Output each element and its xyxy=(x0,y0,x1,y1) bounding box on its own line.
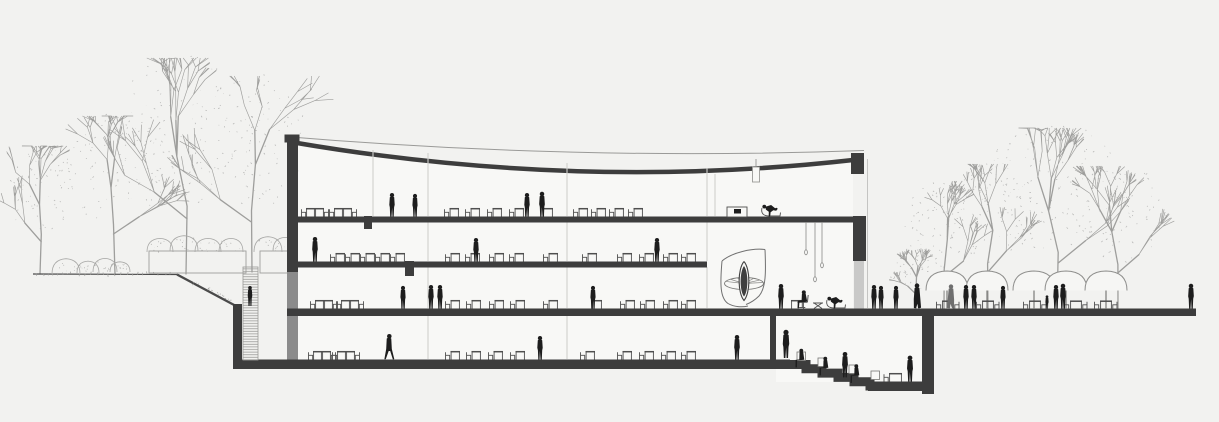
right-parapet-cap xyxy=(851,153,864,174)
tree-foliage-specks xyxy=(979,126,1131,248)
parasol-icon xyxy=(1045,271,1087,309)
parasol-icon xyxy=(1085,271,1127,309)
ground-floor-slab xyxy=(287,309,1196,317)
tree-twigs xyxy=(66,116,190,217)
tree-twigs xyxy=(1072,166,1174,255)
tree-foliage-specks xyxy=(115,56,258,203)
cafe-table-set xyxy=(1024,301,1047,309)
tree-twigs xyxy=(103,58,217,192)
left-wall xyxy=(287,140,298,272)
floor-slab-level1 xyxy=(287,217,866,223)
person-child xyxy=(1045,295,1048,308)
beam-stub xyxy=(364,216,372,229)
tree xyxy=(103,56,257,274)
hedge-planter xyxy=(149,251,246,273)
chair-icon xyxy=(1042,302,1046,309)
table-legs xyxy=(1030,301,1041,309)
exterior-stair-hatch xyxy=(243,267,258,360)
chair-icon xyxy=(995,302,999,309)
chair-icon xyxy=(955,302,959,309)
right-wall xyxy=(853,216,866,261)
bush xyxy=(52,259,80,274)
object-on-sideboard xyxy=(734,209,741,214)
parasol-icon xyxy=(926,271,968,309)
seating-cube xyxy=(871,371,880,380)
cafe-table-set xyxy=(1065,301,1088,309)
basement-divider-wall xyxy=(770,316,776,361)
tree-branches xyxy=(1099,206,1139,309)
tree-branches xyxy=(107,158,139,274)
chair-icon xyxy=(1083,302,1087,309)
person-stand xyxy=(871,285,876,309)
tree xyxy=(0,146,71,274)
bush xyxy=(147,238,173,252)
person-coat xyxy=(914,283,921,308)
tree-foliage-specks xyxy=(905,183,978,268)
bush xyxy=(195,238,221,252)
table-legs xyxy=(1071,301,1082,309)
chair-icon xyxy=(937,302,941,309)
person-stand xyxy=(1188,284,1194,309)
chair-icon xyxy=(977,302,981,309)
person-stand xyxy=(893,286,898,309)
chair-icon xyxy=(1095,302,1099,309)
tree-twigs xyxy=(0,146,70,223)
basement-bottom-slab xyxy=(233,360,790,370)
floor-slab-level2 xyxy=(287,262,707,268)
terrace-umbrellas xyxy=(926,271,1127,309)
beam-stub xyxy=(405,261,414,276)
hanging-lamp-icon xyxy=(753,167,760,182)
section-drawing-canvas xyxy=(0,0,1219,422)
architectural-section-drawing xyxy=(0,0,1219,422)
hedge-planter xyxy=(260,251,290,273)
tree-foliage-specks xyxy=(1067,170,1167,262)
grass-specks xyxy=(36,272,231,301)
bush xyxy=(219,238,243,252)
tree-branches xyxy=(25,180,41,274)
chair-icon xyxy=(1024,302,1028,309)
bush xyxy=(254,237,282,252)
left-wall-below-grade xyxy=(287,272,298,361)
bush xyxy=(110,262,130,272)
roof-skin-line xyxy=(285,137,865,154)
chair-icon xyxy=(1113,302,1117,309)
person-stand xyxy=(878,286,883,309)
right-glazing xyxy=(854,261,864,309)
tree-twigs xyxy=(889,248,933,286)
basement-fill xyxy=(298,316,772,360)
retaining-wall xyxy=(233,304,242,364)
